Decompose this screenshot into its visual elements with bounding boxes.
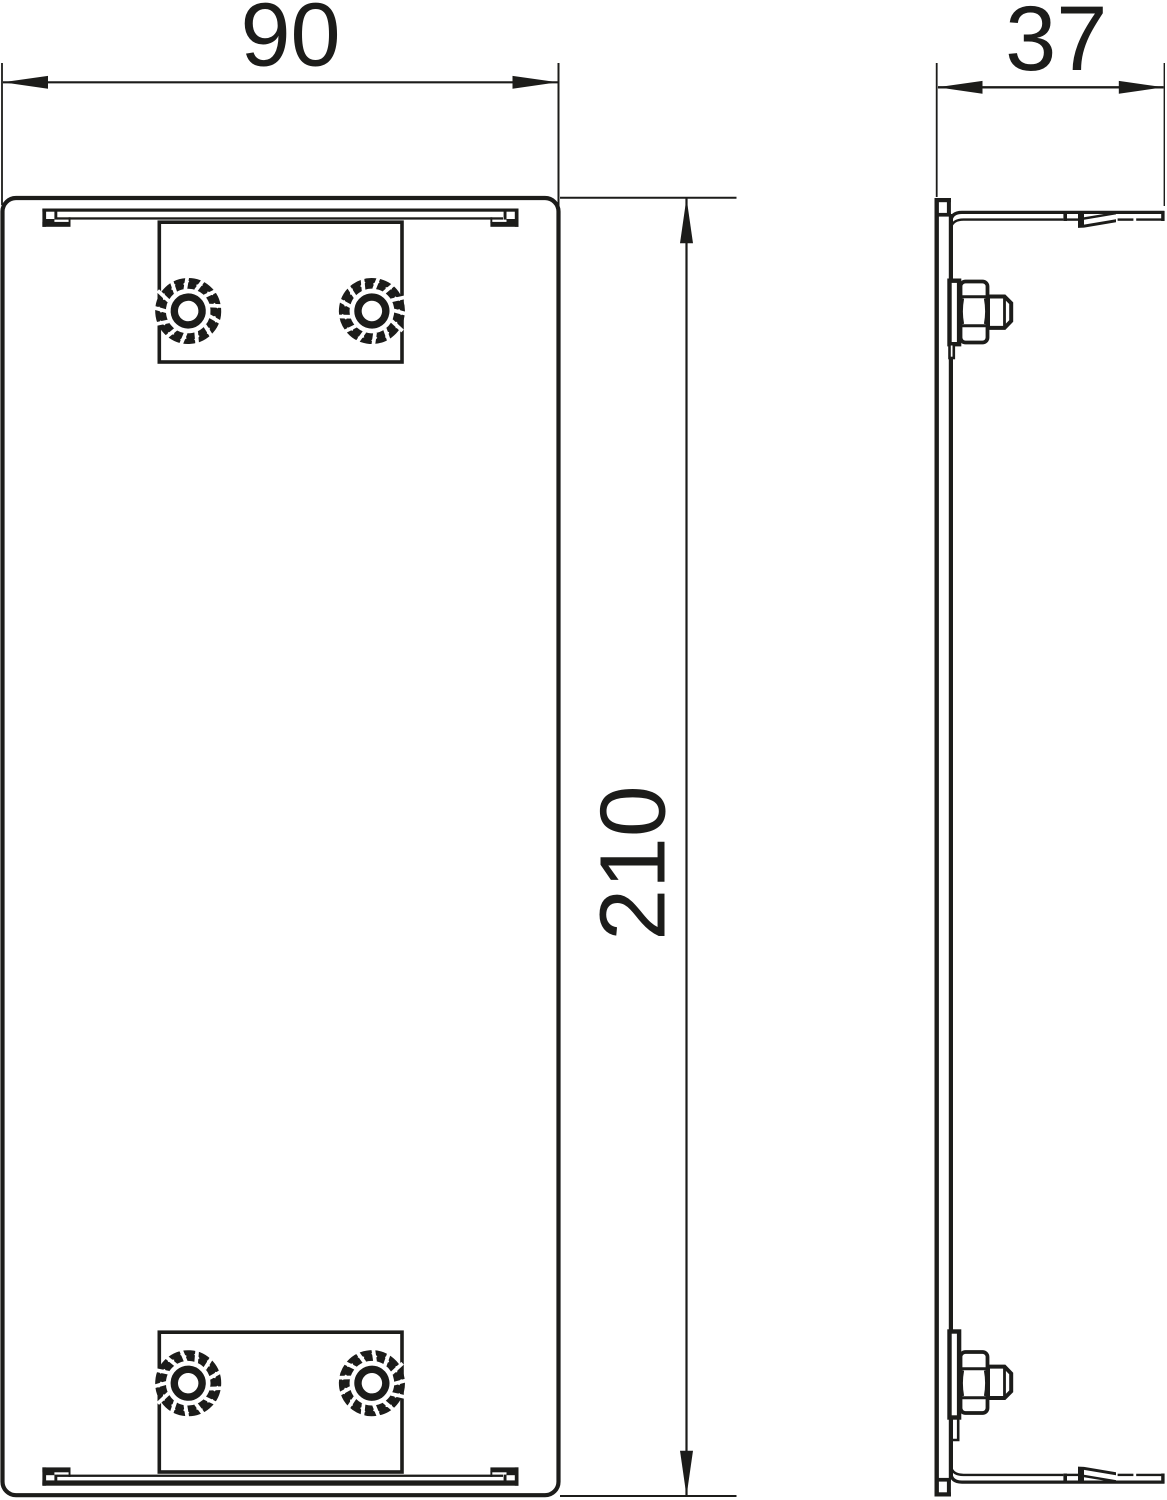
svg-text:37: 37 [1005,0,1107,90]
svg-text:90: 90 [240,0,340,86]
svg-text:210: 210 [581,785,685,940]
